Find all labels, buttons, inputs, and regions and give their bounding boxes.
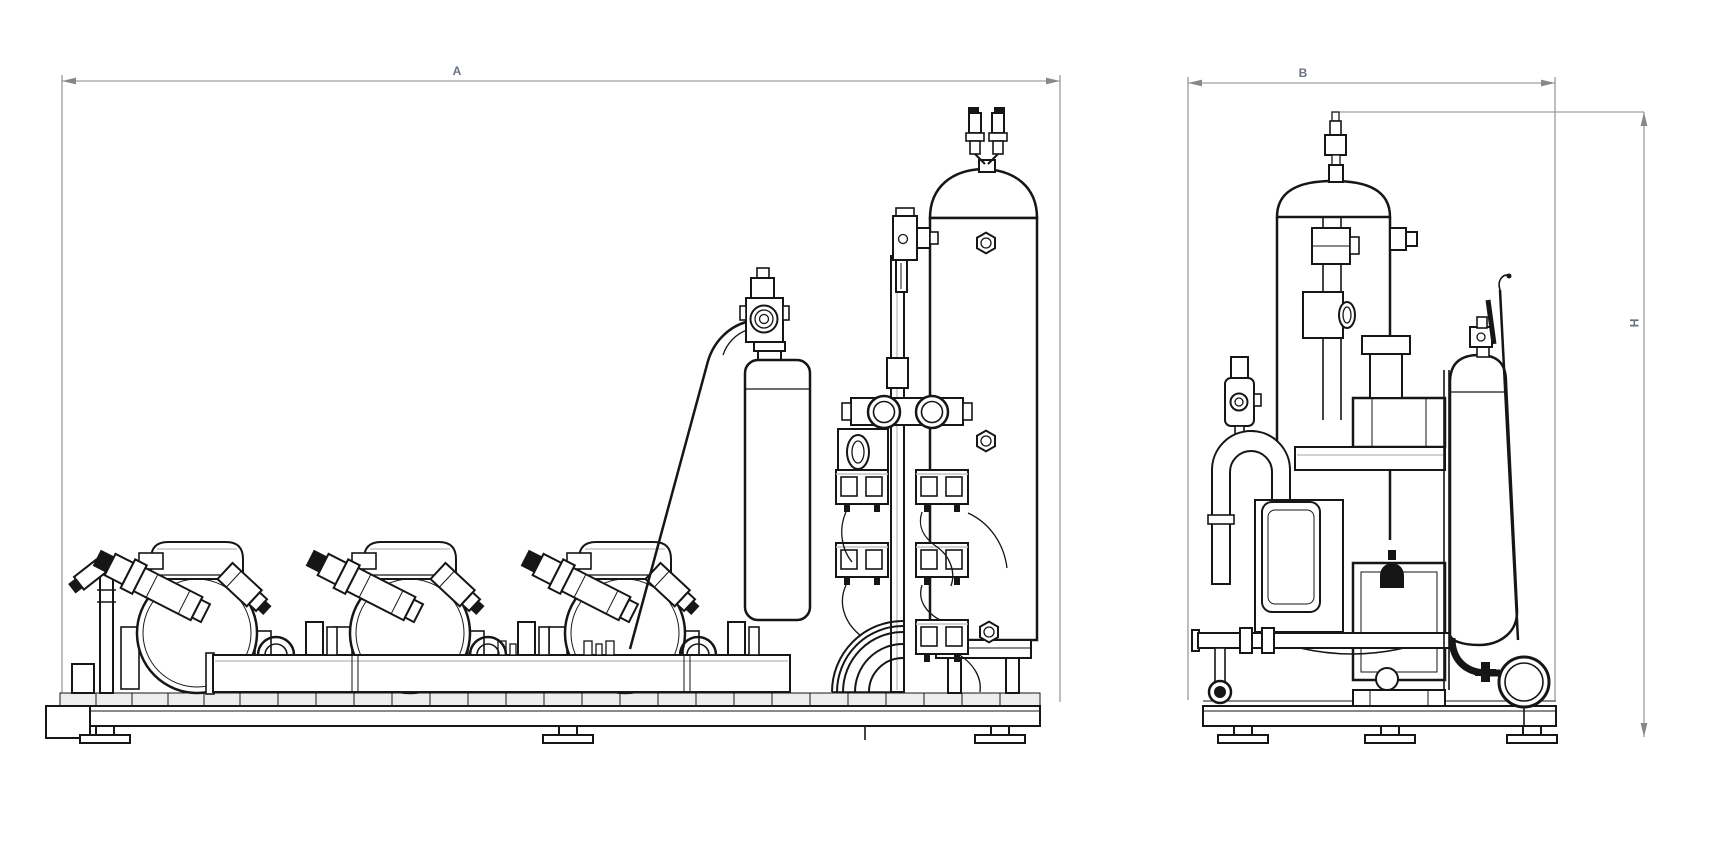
machine-foot: [1365, 726, 1415, 743]
front-elevation-view: [0, 0, 1040, 743]
pressure-regulator: [740, 298, 789, 342]
sight-glass: [1376, 668, 1398, 690]
compressor-unit-side: [1255, 336, 1445, 706]
accumulator-top-valve: [1325, 112, 1346, 182]
arrowhead-left-icon: [62, 78, 76, 85]
oil-separator-vessel: [1450, 274, 1518, 646]
drawing-canvas: A B H: [0, 0, 1733, 845]
dimension-b-label: B: [1299, 66, 1308, 80]
solenoid-valve: [836, 470, 888, 512]
arrowhead-left-icon: [1188, 80, 1202, 87]
hex-fitting: [977, 233, 995, 254]
suction-riser-pipe: [67, 560, 116, 693]
technical-drawing: A B H: [0, 0, 1733, 845]
dimension-h-label: H: [1627, 319, 1641, 328]
receiver-top-valves: [966, 107, 1007, 172]
arrowhead-right-icon: [1541, 80, 1555, 87]
side-elevation-view: [1192, 112, 1557, 743]
solenoid-valve: [836, 543, 888, 585]
machine-foot: [1507, 726, 1557, 743]
hex-fitting: [980, 622, 998, 643]
base-frame-side: [1203, 701, 1557, 743]
dimension-a-label: A: [453, 64, 462, 78]
hex-fitting: [977, 431, 995, 452]
machine-foot: [543, 726, 593, 743]
machine-foot: [1218, 726, 1268, 743]
separator-top-valve: [1470, 300, 1494, 357]
bell-valve: [1380, 563, 1404, 588]
arrowhead-down-icon: [1641, 723, 1648, 737]
arrowhead-right-icon: [1046, 78, 1060, 85]
arrowhead-up-icon: [1641, 112, 1648, 126]
machine-foot: [975, 726, 1025, 743]
